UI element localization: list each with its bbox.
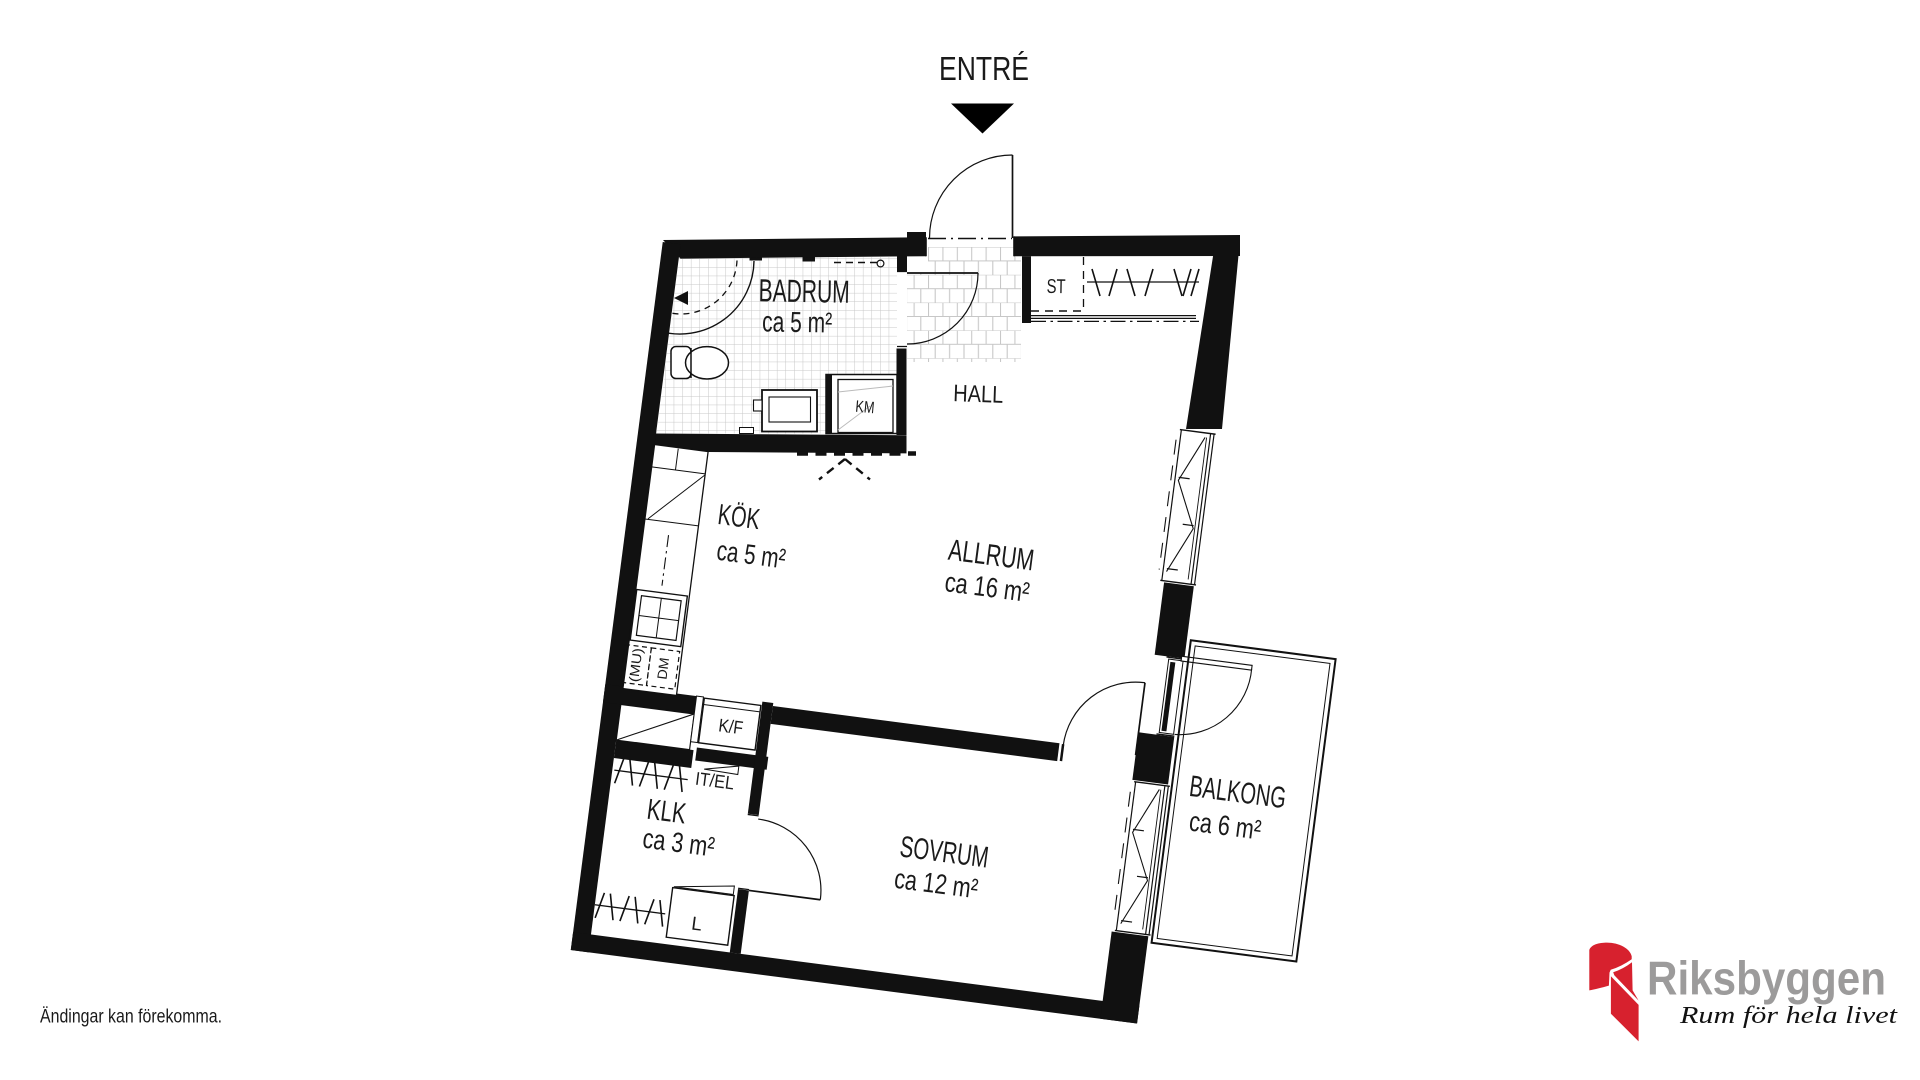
svg-text:K/F: K/F (717, 714, 744, 738)
svg-text:ca 5 m²: ca 5 m² (762, 306, 833, 339)
svg-text:ENTRÉ: ENTRÉ (939, 50, 1029, 87)
svg-text:Ändingar kan förekomma.: Ändingar kan förekomma. (40, 1006, 222, 1028)
svg-text:HALL: HALL (953, 380, 1004, 409)
svg-text:Rum för hela livet: Rum för hela livet (1679, 1002, 1899, 1029)
svg-text:KÖK: KÖK (716, 499, 762, 536)
svg-text:DM: DM (654, 657, 672, 681)
svg-text:ca 6 m²: ca 6 m² (1188, 806, 1263, 846)
svg-text:ca 5 m²: ca 5 m² (715, 535, 787, 575)
svg-text:ca 3 m²: ca 3 m² (641, 823, 716, 863)
svg-text:ST: ST (1046, 276, 1065, 298)
svg-text:Riksbyggen: Riksbyggen (1647, 952, 1886, 1005)
svg-text:KM: KM (855, 398, 875, 418)
svg-text:IT/EL: IT/EL (694, 768, 735, 794)
svg-text:BADRUM: BADRUM (758, 272, 850, 310)
